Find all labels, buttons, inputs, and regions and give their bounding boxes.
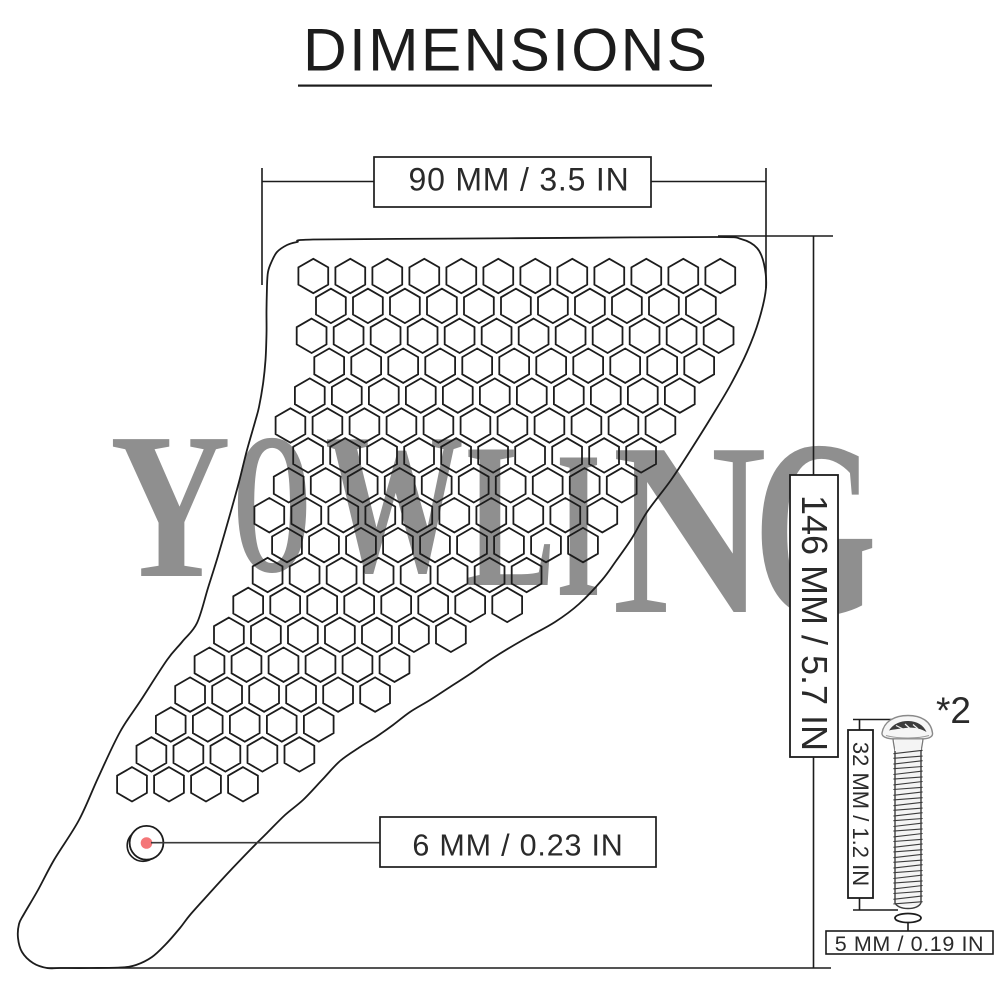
svg-text:32 MM / 1.2 IN: 32 MM / 1.2 IN [848,742,873,886]
svg-text:DIMENSIONS: DIMENSIONS [303,16,707,84]
svg-text:N: N [612,392,767,666]
svg-text:6 MM / 0.23 IN: 6 MM / 0.23 IN [412,829,623,863]
svg-text:Y: Y [110,389,231,621]
svg-text:*2: *2 [936,690,971,731]
svg-text:L: L [466,400,556,630]
svg-text:90 MM / 3.5 IN: 90 MM / 3.5 IN [408,162,629,198]
svg-text:146 MM / 5.7 IN: 146 MM / 5.7 IN [794,495,835,751]
svg-text:O: O [233,393,311,616]
svg-text:5 MM / 0.19 IN: 5 MM / 0.19 IN [835,932,984,956]
